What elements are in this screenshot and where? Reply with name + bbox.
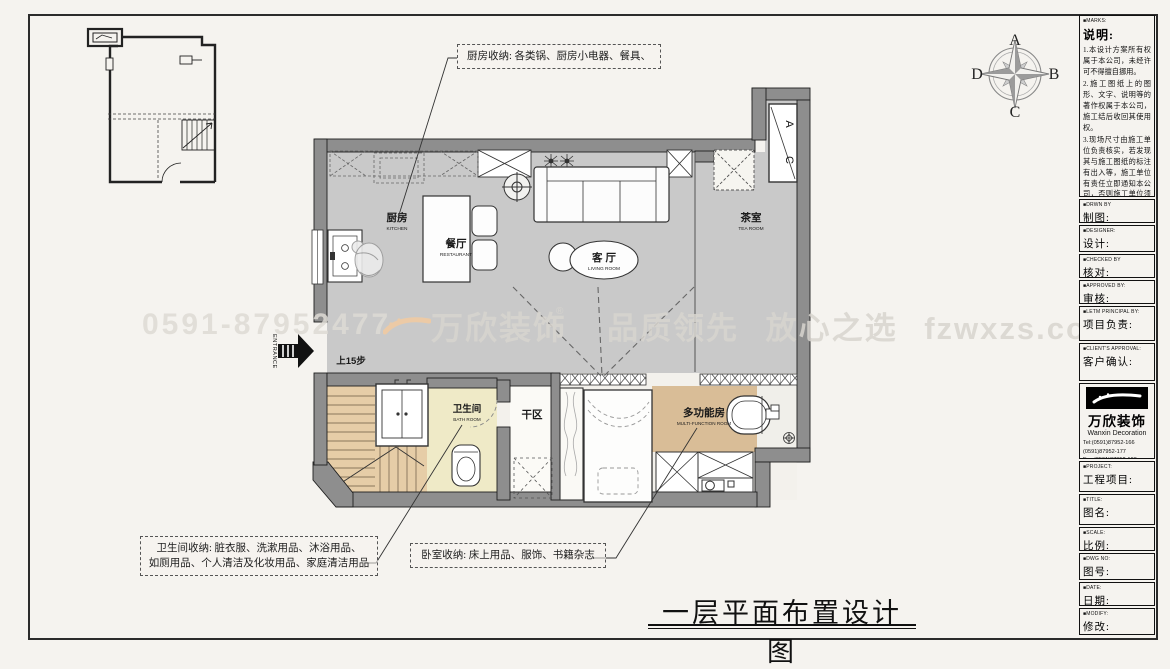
date-zh: 日期: <box>1083 593 1151 606</box>
entrance-label: ENTRANCE <box>271 334 277 369</box>
company-logo <box>1086 387 1148 409</box>
wardrobe <box>560 388 583 500</box>
multi-label-en: MULTI-FUNCTION ROOM <box>677 421 731 426</box>
tea-label-en: TEA ROOM <box>738 226 763 232</box>
company-name-en: Wanxin Decoration <box>1083 430 1151 437</box>
mini-key-plan <box>88 29 215 182</box>
title-underline-thick <box>648 624 916 626</box>
modify-zh: 修改: <box>1083 619 1151 634</box>
drawn-by-zh: 制图: <box>1083 210 1151 223</box>
date-en: ■DATE: <box>1083 585 1151 591</box>
shaft-hatch <box>714 150 754 190</box>
client-approval-zh: 客户确认: <box>1083 354 1151 369</box>
titleblock-scale: ■SCALE: 比例: <box>1079 527 1155 551</box>
entrance-arrow: ENTRANCE <box>271 334 314 369</box>
bedroom-storage-text: 卧室收纳: 床上用品、服饰、书籍杂志 <box>421 550 595 561</box>
title-block: ■MARKS: 说明: 1.本设计方案所有权属于本公司，未经许可不得擅自挪用。 … <box>1079 15 1155 637</box>
titleblock-designer: ■DESIGNER: 设计: <box>1079 225 1155 252</box>
titleblock-modify: ■MODIFY: 修改: <box>1079 608 1155 635</box>
checked-by-zh: 核对: <box>1083 265 1151 278</box>
approved-by-zh: 审核: <box>1083 291 1151 304</box>
scale-zh: 比例: <box>1083 538 1151 551</box>
titleblock-date: ■DATE: 日期: <box>1079 582 1155 606</box>
company-swoosh-icon <box>1091 390 1143 406</box>
kitchen-storage-callout: 厨房收纳: 各类锅、厨房小电器、餐具、 <box>457 44 661 69</box>
dry-label: 干区 <box>522 409 543 421</box>
drawing-title-zh: 图名: <box>1083 505 1151 520</box>
sofa <box>534 167 669 222</box>
floor-drain <box>784 433 795 444</box>
bathroom-storage-callout: 卫生间收纳: 脏衣服、洗漱用品、沐浴用品、 如厕用品、个人清洁及化妆用品、家庭清… <box>140 536 378 576</box>
marks-zh-label: 说明: <box>1083 26 1151 43</box>
titleblock-checked-by: ■CHECKED BY 核对: <box>1079 254 1155 278</box>
designer-en: ■DESIGNER: <box>1083 228 1151 234</box>
drawn-by-en: ■DRWN BY <box>1083 202 1151 208</box>
titleblock-marks: ■MARKS: 说明: 1.本设计方案所有权属于本公司，未经许可不得擅自挪用。 … <box>1079 15 1155 197</box>
titleblock-project: ■PROJECT: 工程项目: <box>1079 461 1155 492</box>
dwg-no-en: ■DWG NO: <box>1083 556 1151 562</box>
compass-s-label: C <box>1010 104 1021 121</box>
ac-closet: A C <box>769 104 797 182</box>
titleblock-drawing-title: ■TITLE: 图名: <box>1079 494 1155 525</box>
ac-letter-c: C <box>783 156 795 164</box>
titleblock-drawn-by: ■DRWN BY 制图: <box>1079 199 1155 223</box>
bath-label-en: BATH ROOM <box>453 417 481 422</box>
bedroom-storage-callout: 卧室收纳: 床上用品、服饰、书籍杂志 <box>410 543 606 568</box>
title-underline-thin <box>648 628 916 629</box>
compass-w-label: D <box>971 66 983 83</box>
modify-en: ■MODIFY: <box>1083 611 1151 617</box>
project-en: ■PROJECT: <box>1083 464 1151 470</box>
company-name: 万欣装饰 <box>1083 410 1151 430</box>
bathroom-storage-text-line1: 卫生间收纳: 脏衣服、洗漱用品、沐浴用品、 <box>147 541 371 556</box>
living-label-en: LIVING ROOM <box>588 266 620 272</box>
living-label-zh: 客 厅 <box>591 251 616 264</box>
scale-en: ■SCALE: <box>1083 530 1151 536</box>
marks-en-label: ■MARKS: <box>1083 18 1151 24</box>
bed <box>584 390 652 502</box>
marks-note-1: 1.本设计方案所有权属于本公司，未经许可不得擅自挪用。 <box>1083 45 1151 77</box>
laundry-units <box>656 452 753 492</box>
tea-label-zh: 茶室 <box>740 211 762 224</box>
company-fax: Fax:(0591)87952-199 <box>1083 456 1151 459</box>
ac-letter-a: A <box>783 120 795 128</box>
compass-rose: A B C D <box>971 32 1059 121</box>
kitchen-label-zh: 厨房 <box>387 211 408 224</box>
approved-by-en: ■APPROVED BY: <box>1083 283 1151 289</box>
dining-label-zh: 餐厅 <box>445 237 467 250</box>
titleblock-principal: ■LETM PRINCIPAL BY: 项目负责: <box>1079 306 1155 341</box>
drawing-sheet: A B C D <box>0 0 1170 653</box>
marks-note-2: 2.施工图纸上的图形、文字、说明等的著作权属于本公司，施工结后收回其使用权。 <box>1083 79 1151 133</box>
principal-en: ■LETM PRINCIPAL BY: <box>1083 309 1151 315</box>
titleblock-dwg-no: ■DWG NO: 图号: <box>1079 553 1155 580</box>
kitchen-storage-text: 厨房收纳: 各类锅、厨房小电器、餐具、 <box>467 51 651 62</box>
company-tel1: Tel:(0591)87952-166 <box>1083 439 1151 448</box>
drawing-title-en: ■TITLE: <box>1083 497 1151 503</box>
project-zh: 工程项目: <box>1083 472 1151 487</box>
compass-n-label: A <box>1009 32 1021 49</box>
kitchen-label-en: KITCHEN <box>386 226 408 232</box>
multi-label-zh: 多功能房 <box>683 406 725 419</box>
dwg-no-zh: 图号: <box>1083 564 1151 579</box>
toilet <box>452 445 480 486</box>
sheet-title: 一层平面布置设计图 <box>648 591 916 669</box>
titleblock-approved-by: ■APPROVED BY: 审核: <box>1079 280 1155 304</box>
designer-zh: 设计: <box>1083 236 1151 251</box>
dining-label-en: RESTAURANT <box>440 252 472 258</box>
client-approval-en: ■CLIENT'S APPROVAL: <box>1083 346 1151 352</box>
marks-note-3: 3.现场尺寸由施工单位负责核实，若发现其与施工图纸的标注有出入等，施工单位有责任… <box>1083 135 1151 197</box>
titleblock-company: 万欣装饰 Wanxin Decoration Tel:(0591)87952-1… <box>1079 383 1155 459</box>
compass-e-label: B <box>1049 66 1060 83</box>
company-tel2: (0591)87952-177 <box>1083 448 1151 457</box>
washstand <box>376 380 428 446</box>
principal-zh: 项目负责: <box>1083 317 1151 332</box>
bath-label-zh: 卫生间 <box>453 403 482 415</box>
steps-label: 上15步 <box>336 355 366 367</box>
checked-by-en: ■CHECKED BY <box>1083 257 1151 263</box>
titleblock-client-approval: ■CLIENT'S APPROVAL: 客户确认: <box>1079 343 1155 381</box>
bathroom-storage-text-line2: 如厕用品、个人清洁及化妆用品、家庭清洁用品 <box>147 556 371 571</box>
bathtub <box>727 396 770 434</box>
